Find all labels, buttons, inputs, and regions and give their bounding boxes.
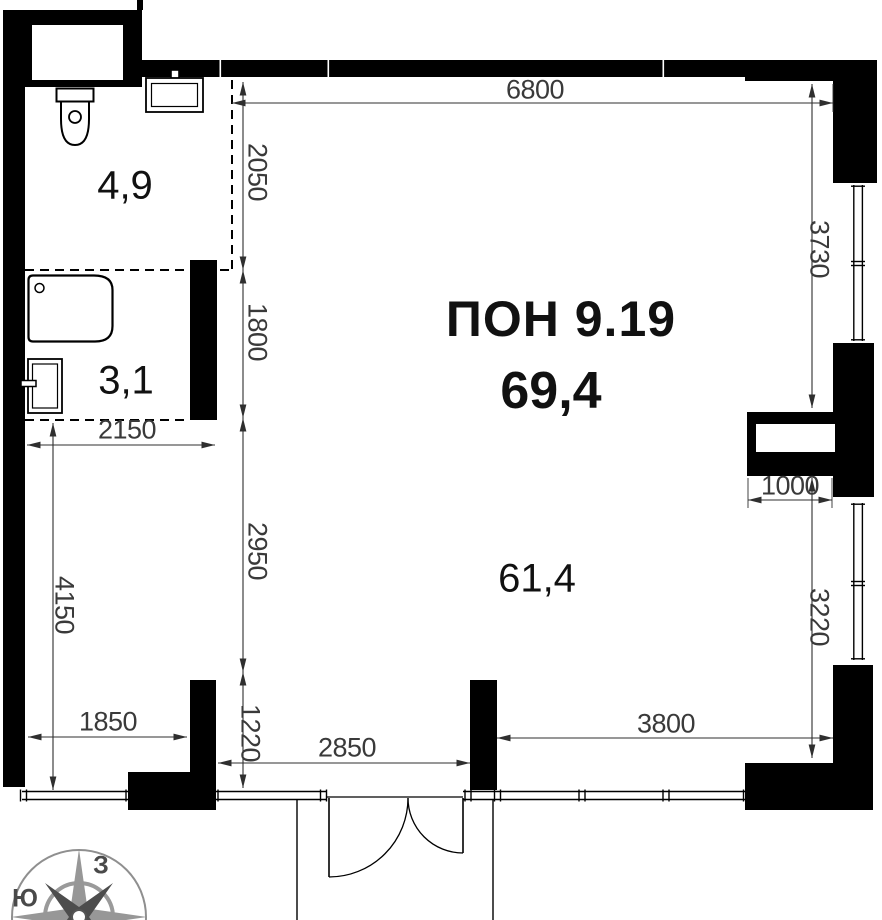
- floor-plan: ПОН 9.19 69,4 4,9 3,1 61,4 6800 2050 180…: [0, 0, 882, 920]
- dim-label-3800: 3800: [637, 709, 695, 740]
- window-right-upper: [851, 185, 865, 341]
- wall-top: [142, 60, 833, 77]
- door-swing-left: [329, 798, 408, 877]
- room-area-wc: 3,1: [98, 359, 154, 404]
- wall-joint-3: [663, 60, 665, 77]
- window-bottom-mid: [216, 790, 327, 802]
- dim-label-1220: 1220: [235, 704, 266, 762]
- window-right-lower: [851, 503, 865, 660]
- toilet-icon: [57, 89, 94, 146]
- wall-right-mid: [833, 343, 874, 497]
- wall-top-thick: [745, 60, 833, 81]
- compass-west-label: З: [93, 852, 109, 881]
- wall-bl-horiz: [128, 772, 216, 810]
- wall-corner-br-horiz: [745, 763, 873, 810]
- window-bottom-left: [21, 790, 129, 802]
- windows: [21, 185, 866, 802]
- dim-label-1800: 1800: [242, 303, 273, 361]
- wall-joint-1: [220, 60, 222, 77]
- dim-label-2850: 2850: [318, 733, 376, 764]
- wall-bath-divider: [190, 260, 217, 420]
- dim-label-3730: 3730: [804, 220, 835, 278]
- wall-shaft-inner: [32, 25, 123, 80]
- plan-drawing: [0, 0, 882, 920]
- washbasin-icon: [21, 359, 62, 413]
- unit-title: ПОН 9.19: [446, 290, 676, 348]
- wall-top-tick: [137, 0, 143, 10]
- dim-label-2950: 2950: [242, 522, 273, 580]
- door-swing-right: [408, 798, 463, 853]
- dim-label-3220: 3220: [804, 588, 835, 646]
- bathtub-icon: [29, 276, 113, 342]
- wall-bl-vert: [190, 680, 216, 772]
- wall-left: [3, 87, 25, 787]
- wall-joint-2: [328, 60, 330, 77]
- unit-total-area: 69,4: [500, 361, 601, 421]
- dim-label-1850: 1850: [79, 707, 137, 738]
- wall-bottom-pier: [470, 680, 497, 790]
- wall-niche-slot: [756, 424, 835, 452]
- dim-label-4150: 4150: [49, 576, 80, 634]
- room-area-bathroom: 4,9: [97, 164, 153, 209]
- room-area-living: 61,4: [498, 557, 576, 602]
- dim-label-1000: 1000: [761, 471, 819, 502]
- walls: [3, 0, 877, 810]
- wall-corner-br-vert: [833, 665, 873, 763]
- compass-south-label: Ю: [12, 885, 38, 914]
- wall-corner-tr: [833, 60, 877, 183]
- balcony-door: [297, 797, 493, 920]
- dim-label-6800: 6800: [506, 75, 564, 106]
- window-bottom-right: [463, 790, 745, 802]
- dim-label-2050: 2050: [242, 143, 273, 201]
- dim-label-2150: 2150: [98, 415, 156, 446]
